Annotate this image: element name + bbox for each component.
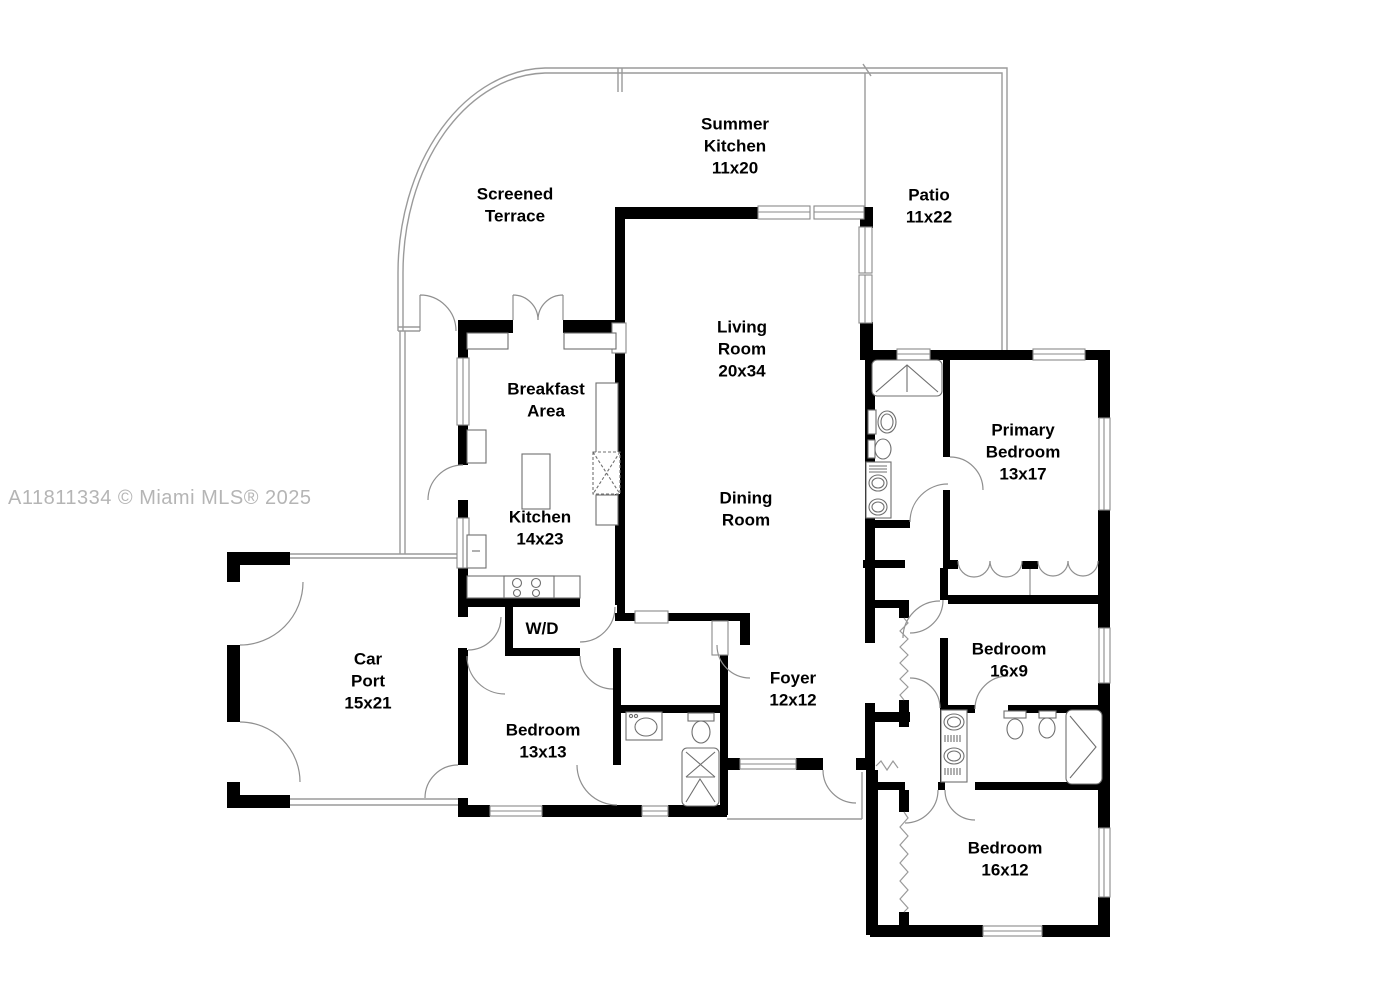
primary-bath-fixtures <box>866 360 942 518</box>
bath-east-door-arc <box>975 676 1008 709</box>
french-door-arc <box>513 295 538 320</box>
hall-door-arc <box>910 678 940 708</box>
primary-bath-door-arc <box>910 484 948 522</box>
hall-door-arc <box>910 600 943 633</box>
kitchen-counter <box>596 495 618 525</box>
walls <box>227 207 1110 937</box>
closet-rod-zigzag <box>876 618 908 912</box>
double-sink-vanity-icon <box>866 462 891 518</box>
bidet-icon <box>868 439 891 459</box>
toilet-icon <box>1004 711 1026 739</box>
kitchen-counter <box>467 576 580 598</box>
sink-icon <box>626 712 662 740</box>
terrace-screen-door-arc <box>420 295 456 331</box>
bath-east-door-arc <box>945 790 975 820</box>
toilet-icon <box>868 410 896 434</box>
mls-watermark: A11811334 © Miami MLS® 2025 <box>8 487 312 510</box>
wd-hall-door-arc <box>580 607 615 642</box>
kitchen-side-door-arc <box>428 465 463 500</box>
carport-door-arc <box>240 722 300 782</box>
front-door-arc <box>823 770 856 803</box>
cabinet <box>467 430 486 463</box>
east-bath-fixtures <box>941 710 1102 784</box>
breakfast-counter <box>564 333 616 349</box>
breakfast-counter <box>467 333 508 349</box>
french-door-arc <box>538 295 563 320</box>
hall-bath-fixtures <box>626 712 719 806</box>
primary-bedroom-door-arc <box>950 457 983 490</box>
carport-hall-door-arc <box>468 617 501 650</box>
bedroom-door-arc <box>467 656 505 694</box>
carport-rear-door-arc <box>425 765 458 798</box>
door-swing-arcs <box>240 295 1098 823</box>
toilet-icon <box>688 713 714 743</box>
floor-plan-page: Summer Kitchen 11x20 Patio 11x22 Screene… <box>0 0 1375 1000</box>
double-sink-vanity-icon <box>941 710 967 782</box>
windows <box>457 206 1110 936</box>
kitchen-fixtures <box>467 333 620 598</box>
shower-icon <box>872 360 942 396</box>
carport-door-arc <box>240 582 303 645</box>
bedroom-door-arc <box>580 656 613 689</box>
cased-openings <box>612 323 728 655</box>
refrigerator-icon <box>593 452 620 494</box>
bidet-icon <box>1039 711 1056 738</box>
kitchen-island <box>522 454 550 509</box>
shower-icon <box>682 748 719 806</box>
bathtub-icon <box>1066 710 1102 784</box>
bathroom-door-arc <box>577 765 617 805</box>
bedroom-16x12-door-arc <box>905 790 938 823</box>
kitchen-counter <box>596 383 618 453</box>
